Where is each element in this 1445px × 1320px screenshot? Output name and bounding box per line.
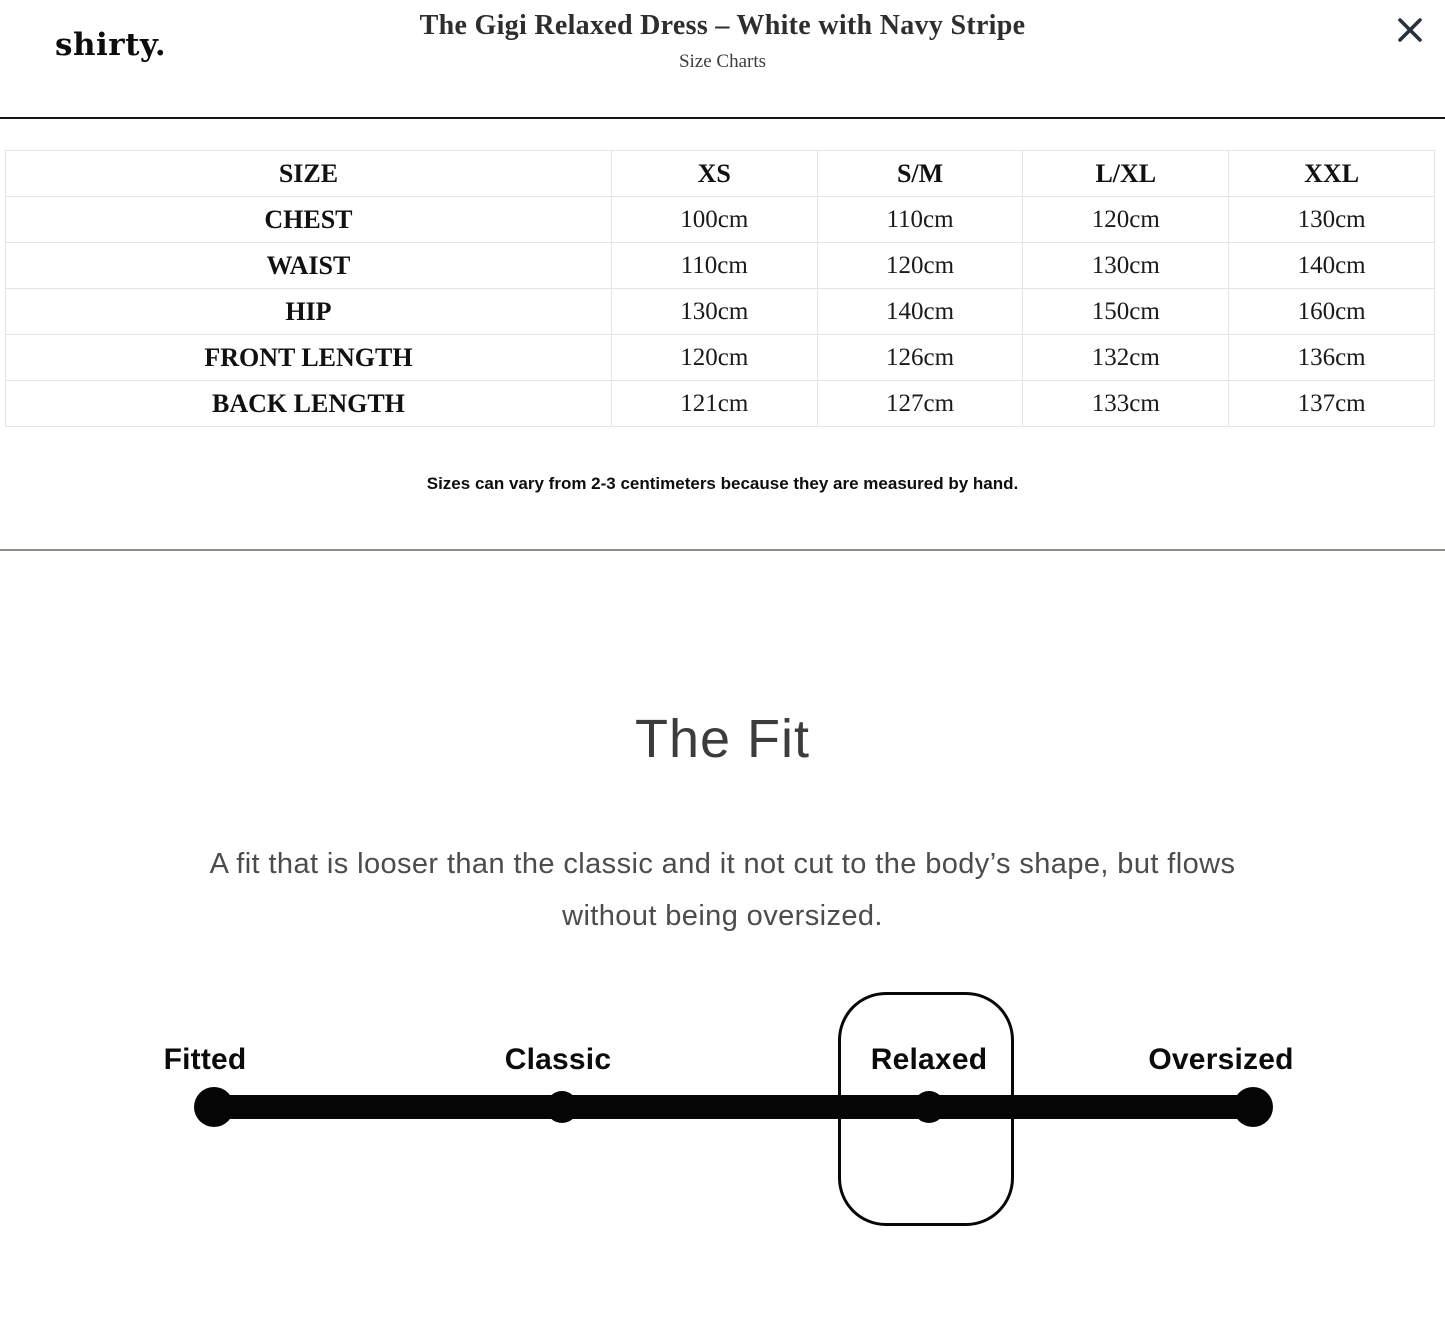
- row-label-front-length: FRONT LENGTH: [6, 335, 612, 381]
- cell-frontlength-sm: 126cm: [817, 335, 1023, 381]
- measurement-note: Sizes can vary from 2-3 centimeters beca…: [0, 474, 1445, 494]
- col-header-xxl: XXL: [1229, 151, 1435, 197]
- scale-label-oversized: Oversized: [1148, 1043, 1293, 1077]
- fit-description-line1: A fit that is looser than the classic an…: [0, 838, 1445, 890]
- fit-description-line2: without being oversized.: [0, 890, 1445, 942]
- size-table: SIZE XS S/M L/XL XXL CHEST 100cm 110cm 1…: [5, 150, 1435, 427]
- cell-waist-xxl: 140cm: [1229, 243, 1435, 289]
- cell-frontlength-xs: 120cm: [611, 335, 817, 381]
- cell-waist-xs: 110cm: [611, 243, 817, 289]
- scale-label-relaxed: Relaxed: [871, 1043, 987, 1077]
- cell-chest-xs: 100cm: [611, 197, 817, 243]
- table-row: WAIST 110cm 120cm 130cm 140cm: [6, 243, 1435, 289]
- cell-backlength-xs: 121cm: [611, 381, 817, 427]
- row-label-hip: HIP: [6, 289, 612, 335]
- cell-backlength-lxl: 133cm: [1023, 381, 1229, 427]
- scale-dot-classic: [546, 1091, 578, 1123]
- cell-chest-sm: 110cm: [817, 197, 1023, 243]
- table-row: CHEST 100cm 110cm 120cm 130cm: [6, 197, 1435, 243]
- cell-hip-lxl: 150cm: [1023, 289, 1229, 335]
- product-title: The Gigi Relaxed Dress – White with Navy…: [0, 10, 1445, 42]
- close-icon: [1395, 15, 1425, 45]
- modal-header: shirty. The Gigi Relaxed Dress – White w…: [0, 0, 1445, 118]
- header-divider: [0, 117, 1445, 119]
- cell-backlength-sm: 127cm: [817, 381, 1023, 427]
- row-label-chest: CHEST: [6, 197, 612, 243]
- col-header-sm: S/M: [817, 151, 1023, 197]
- cell-frontlength-lxl: 132cm: [1023, 335, 1229, 381]
- title-block: The Gigi Relaxed Dress – White with Navy…: [0, 10, 1445, 73]
- cell-hip-sm: 140cm: [817, 289, 1023, 335]
- row-label-back-length: BACK LENGTH: [6, 381, 612, 427]
- table-row: HIP 130cm 140cm 150cm 160cm: [6, 289, 1435, 335]
- scale-label-classic: Classic: [505, 1043, 611, 1077]
- table-header-row: SIZE XS S/M L/XL XXL: [6, 151, 1435, 197]
- cell-backlength-xxl: 137cm: [1229, 381, 1435, 427]
- fit-scale: Fitted Classic Relaxed Oversized: [0, 985, 1445, 1245]
- cell-waist-lxl: 130cm: [1023, 243, 1229, 289]
- scale-dot-oversized: [1233, 1087, 1273, 1127]
- col-header-lxl: L/XL: [1023, 151, 1229, 197]
- cell-hip-xs: 130cm: [611, 289, 817, 335]
- section-divider: [0, 549, 1445, 551]
- table-row: BACK LENGTH 121cm 127cm 133cm 137cm: [6, 381, 1435, 427]
- cell-frontlength-xxl: 136cm: [1229, 335, 1435, 381]
- size-charts-subtitle: Size Charts: [0, 51, 1445, 73]
- size-chart-modal: shirty. The Gigi Relaxed Dress – White w…: [0, 0, 1445, 1320]
- fit-section-title: The Fit: [0, 708, 1445, 770]
- scale-dot-fitted: [194, 1087, 234, 1127]
- fit-scale-bar: [214, 1095, 1253, 1119]
- close-button[interactable]: [1388, 8, 1432, 52]
- table-row: FRONT LENGTH 120cm 126cm 132cm 136cm: [6, 335, 1435, 381]
- fit-description: A fit that is looser than the classic an…: [0, 838, 1445, 942]
- cell-chest-xxl: 130cm: [1229, 197, 1435, 243]
- scale-dot-relaxed: [913, 1091, 945, 1123]
- col-header-size: SIZE: [6, 151, 612, 197]
- row-label-waist: WAIST: [6, 243, 612, 289]
- col-header-xs: XS: [611, 151, 817, 197]
- cell-chest-lxl: 120cm: [1023, 197, 1229, 243]
- scale-label-fitted: Fitted: [164, 1043, 247, 1077]
- cell-waist-sm: 120cm: [817, 243, 1023, 289]
- cell-hip-xxl: 160cm: [1229, 289, 1435, 335]
